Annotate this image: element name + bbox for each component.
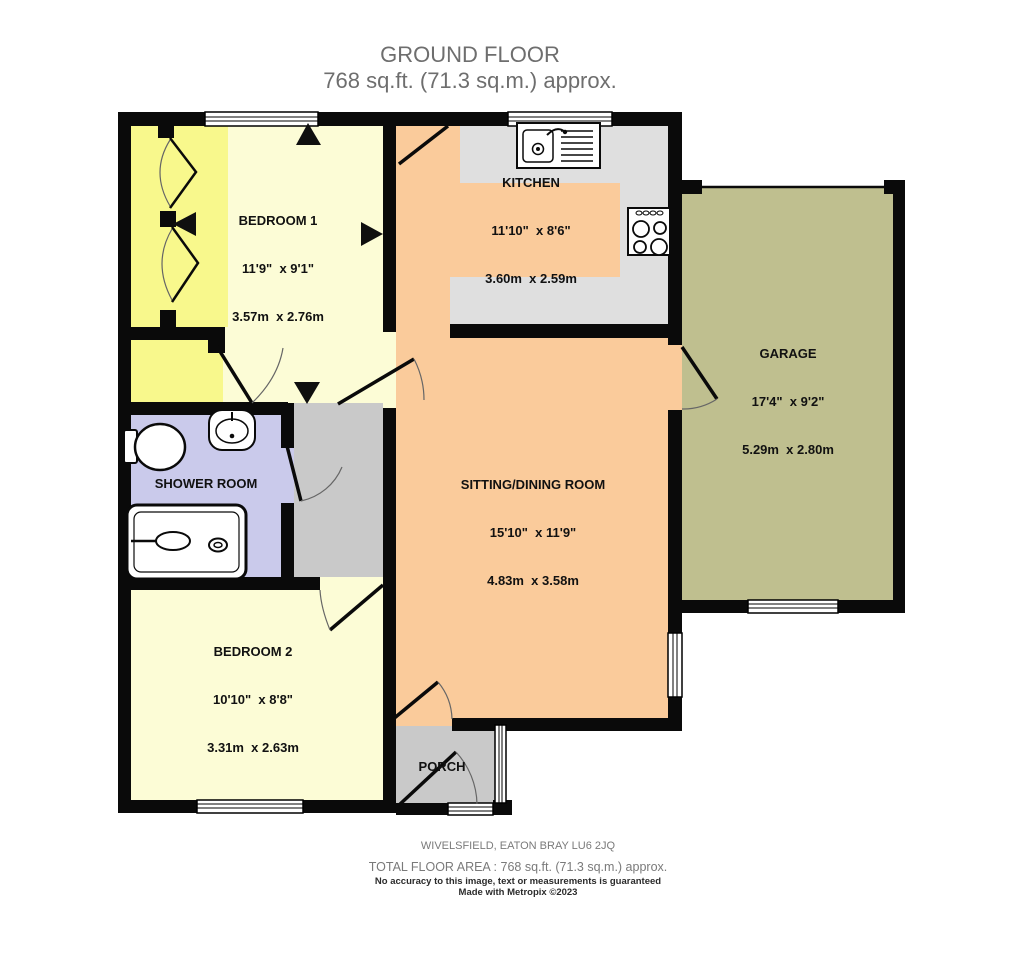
room-label-porch: PORCH <box>419 727 466 807</box>
room-name: SITTING/DINING ROOM <box>461 477 605 493</box>
room-name: BEDROOM 2 <box>207 644 299 660</box>
stove-hob-icon <box>628 208 670 255</box>
room-label-bedroom2: BEDROOM 2 10'10" x 8'8" 3.31m x 2.63m <box>207 612 299 788</box>
room-dims-metric: 3.60m x 2.59m <box>485 271 577 287</box>
window-icon <box>197 800 303 813</box>
floorplan-page: GROUND FLOOR 768 sq.ft. (71.3 sq.m.) app… <box>0 0 1024 976</box>
room-name: GARAGE <box>742 346 834 362</box>
credit-text: Made with Metropix ©2023 <box>318 887 718 898</box>
room-name: BEDROOM 1 <box>232 213 324 229</box>
room-name: KITCHEN <box>485 175 577 191</box>
room-dims-metric: 4.83m x 3.58m <box>461 573 605 589</box>
window-icon <box>748 600 838 613</box>
room-dims-metric: 3.57m x 2.76m <box>232 309 324 325</box>
room-dims-imperial: 10'10" x 8'8" <box>207 692 299 708</box>
room-dims-imperial: 11'9" x 9'1" <box>232 261 324 277</box>
room-label-garage: GARAGE 17'4" x 9'2" 5.29m x 2.80m <box>742 314 834 490</box>
room-name: SHOWER ROOM <box>155 476 258 492</box>
window-icon <box>668 633 682 697</box>
room-dims-metric: 5.29m x 2.80m <box>742 442 834 458</box>
window-icon <box>495 725 506 803</box>
hallway-floor <box>288 403 383 587</box>
total-floor-area: TOTAL FLOOR AREA : 768 sq.ft. (71.3 sq.m… <box>318 860 718 874</box>
window-icon <box>205 112 318 126</box>
room-dims-imperial: 11'10" x 8'6" <box>485 223 577 239</box>
room-dims-imperial: 17'4" x 9'2" <box>742 394 834 410</box>
room-label-bedroom1: BEDROOM 1 11'9" x 9'1" 3.57m x 2.76m <box>232 181 324 357</box>
disclaimer-text: No accuracy to this image, text or measu… <box>318 876 718 887</box>
room-name: PORCH <box>419 759 466 775</box>
room-label-kitchen: KITCHEN 11'10" x 8'6" 3.60m x 2.59m <box>485 143 577 319</box>
room-dims-metric: 3.31m x 2.63m <box>207 740 299 756</box>
room-dims-imperial: 15'10" x 11'9" <box>461 525 605 541</box>
room-label-shower-room: SHOWER ROOM <box>155 444 258 524</box>
room-label-sitting-dining: SITTING/DINING ROOM 15'10" x 11'9" 4.83m… <box>461 445 605 621</box>
property-address: WIVELSFIELD, EATON BRAY LU6 2JQ <box>318 840 718 852</box>
